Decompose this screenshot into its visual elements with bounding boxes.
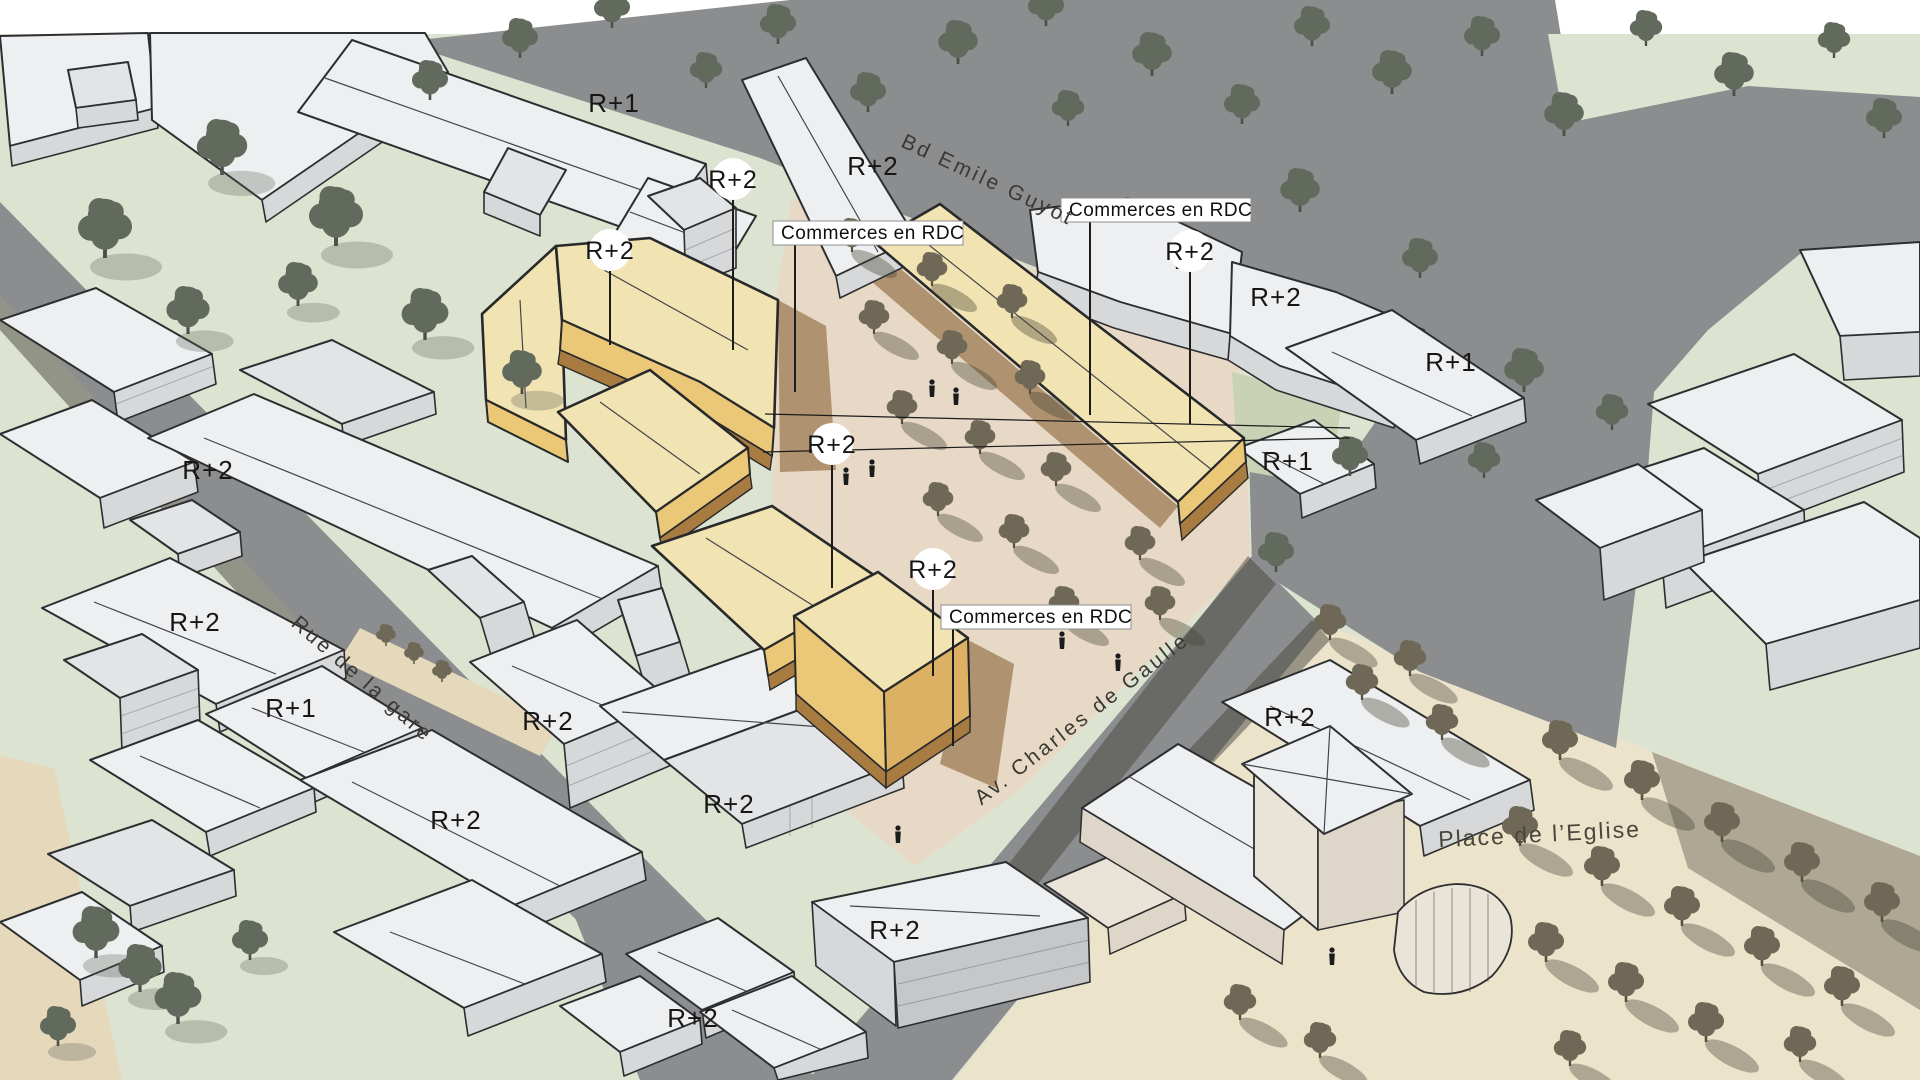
building xyxy=(68,62,138,128)
floor-label: R+2 xyxy=(869,915,920,945)
person-icon xyxy=(929,379,935,397)
floor-label: R+1 xyxy=(1262,446,1313,476)
circled-floor-label-text: R+2 xyxy=(807,431,857,459)
callout-text: Commerces en RDC xyxy=(949,607,1132,628)
person-icon xyxy=(895,825,901,843)
floor-label: R+2 xyxy=(667,1003,718,1033)
circled-floor-label-text: R+2 xyxy=(908,556,958,584)
floor-label: R+2 xyxy=(1264,702,1315,732)
callout-text: Commerces en RDC xyxy=(781,223,964,244)
site-plan-rendering: R+1R+2R+2R+1R+1R+2R+2R+1R+2R+2R+2R+2R+2R… xyxy=(0,0,1920,1080)
person-icon xyxy=(953,387,959,405)
tree-shadow xyxy=(511,391,564,411)
floor-label: R+2 xyxy=(182,455,233,485)
tree-shadow xyxy=(90,254,162,281)
tree-shadow xyxy=(208,171,275,196)
tree-shadow xyxy=(240,957,288,975)
tree-shadow xyxy=(412,336,474,359)
person-icon xyxy=(1329,947,1335,965)
circled-floor-label-text: R+2 xyxy=(585,237,635,265)
tree-shadow xyxy=(165,1020,227,1043)
tree-shadow xyxy=(48,1043,96,1061)
commerce-callout: Commerces en RDC xyxy=(773,221,964,245)
floor-label: R+2 xyxy=(522,706,573,736)
person-icon xyxy=(1115,653,1121,671)
floor-label: R+1 xyxy=(1425,347,1476,377)
callout-text: Commerces en RDC xyxy=(1069,200,1252,221)
commerce-callout: Commerces en RDC xyxy=(1061,198,1252,222)
person-icon xyxy=(869,459,875,477)
floor-label: R+2 xyxy=(703,789,754,819)
circled-floor-label-text: R+2 xyxy=(708,166,758,194)
floor-label: R+2 xyxy=(430,805,481,835)
floor-label: R+2 xyxy=(1250,282,1301,312)
person-icon xyxy=(1059,631,1065,649)
tree-shadow xyxy=(321,242,393,269)
floor-label: R+1 xyxy=(588,88,639,118)
commerce-callout: Commerces en RDC xyxy=(941,605,1132,629)
floor-label: R+2 xyxy=(169,607,220,637)
tree-shadow xyxy=(287,303,340,323)
floor-label: R+1 xyxy=(265,693,316,723)
person-icon xyxy=(843,467,849,485)
circled-floor-label-text: R+2 xyxy=(1165,238,1215,266)
floor-label: R+2 xyxy=(847,151,898,181)
tree-shadow xyxy=(176,330,234,352)
